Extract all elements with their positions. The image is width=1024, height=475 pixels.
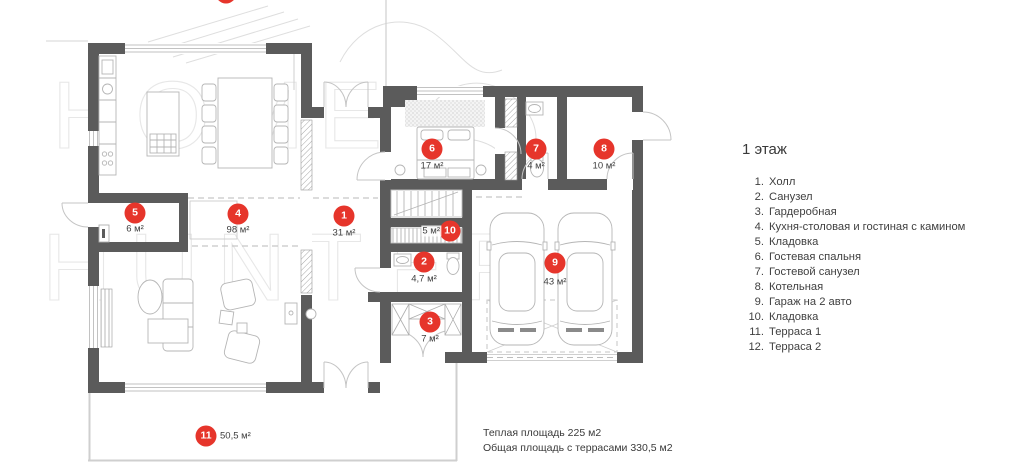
radiator-icon: [301, 120, 312, 190]
room-marker-3: 3: [420, 312, 441, 333]
warm-area-text: Теплая площадь 225 м2: [483, 426, 673, 441]
room-marker-5: 5: [125, 203, 146, 224]
legend-item: 11.Терраса 1: [742, 325, 1002, 340]
legend-item: 12.Терраса 2: [742, 340, 1002, 355]
room-area-8: 10 м²: [593, 161, 616, 172]
floorplan-page: HOME HUNTER: [0, 0, 1024, 475]
legend-item: 2.Санузел: [742, 190, 1002, 205]
window-radiator-icon: [101, 289, 112, 347]
room-marker-11: 11: [196, 426, 217, 447]
room-marker-7: 7: [526, 139, 547, 160]
room-area-1: 31 м²: [333, 228, 356, 239]
room-marker-4: 4: [228, 204, 249, 225]
legend-title: 1 этаж: [742, 141, 1002, 158]
legend: 1 этаж 1.Холл 2.Санузел 3.Гардеробная 4.…: [742, 141, 1002, 355]
room-area-11: 50,5 м²: [220, 431, 251, 442]
legend-item: 4.Кухня-столовая и гостиная с камином: [742, 220, 1002, 235]
room-area-5: 6 м²: [126, 224, 144, 235]
legend-item: 9.Гараж на 2 авто: [742, 295, 1002, 310]
room-area-3: 7 м²: [421, 334, 439, 345]
legend-item: 7.Гостевой санузел: [742, 265, 1002, 280]
legend-list: 1.Холл 2.Санузел 3.Гардеробная 4.Кухня-с…: [742, 175, 1002, 355]
room-area-10: 5 м²: [421, 226, 441, 237]
car-icon: [487, 213, 547, 345]
room-marker-6: 6: [422, 139, 443, 160]
room-marker-1: 1: [334, 206, 355, 227]
room-marker-9: 9: [545, 253, 566, 274]
legend-item: 10.Кладовка: [742, 310, 1002, 325]
area-summary: Теплая площадь 225 м2 Общая площадь с те…: [483, 426, 673, 455]
headboard: [405, 100, 485, 127]
room-area-9: 43 м²: [544, 277, 567, 288]
fireplace-icon: [301, 250, 312, 293]
shelf-icon: [505, 99, 517, 127]
shelf-icon: [505, 152, 517, 180]
kitchen-counter: [99, 56, 116, 175]
room-marker-10: 10: [440, 221, 461, 242]
legend-item: 6.Гостевая спальня: [742, 250, 1002, 265]
legend-item: 5.Кладовка: [742, 235, 1002, 250]
room-area-4: 98 м²: [227, 225, 250, 236]
legend-item: 3.Гардеробная: [742, 205, 1002, 220]
kitchen-island: [147, 92, 179, 156]
legend-item: 1.Холл: [742, 175, 1002, 190]
storage-fixture: [99, 225, 109, 242]
legend-item: 8.Котельная: [742, 280, 1002, 295]
room-area-7: 4 м²: [527, 161, 545, 172]
room-marker-2: 2: [414, 252, 435, 273]
room-marker-8: 8: [594, 139, 615, 160]
room-area-2: 4,7 м²: [411, 274, 437, 285]
room-area-6: 17 м²: [421, 161, 444, 172]
total-area-text: Общая площадь с террасами 330,5 м2: [483, 441, 673, 456]
toilet-icon: [447, 258, 459, 275]
